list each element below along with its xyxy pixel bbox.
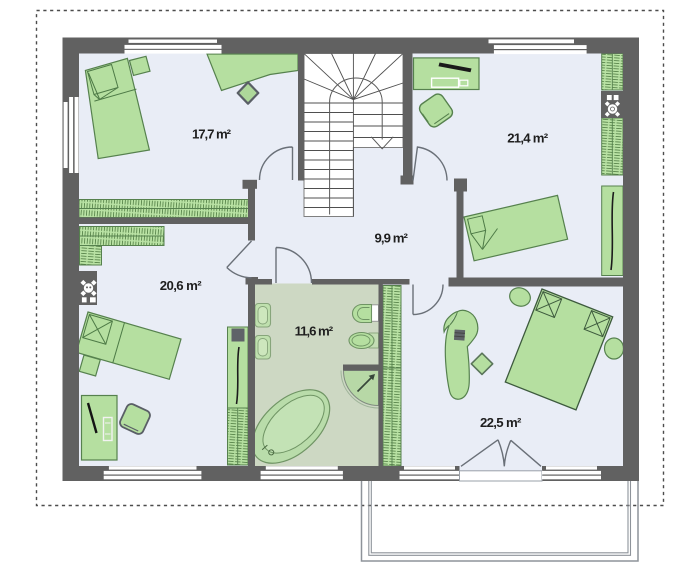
svg-text:11,6 m²: 11,6 m²	[295, 324, 334, 339]
svg-text:21,4 m²: 21,4 m²	[507, 130, 549, 145]
svg-text:9,9 m²: 9,9 m²	[374, 231, 408, 246]
svg-text:17,7 m²: 17,7 m²	[192, 127, 232, 142]
svg-text:22,5 m²: 22,5 m²	[480, 415, 522, 430]
svg-text:20,6 m²: 20,6 m²	[160, 278, 203, 293]
